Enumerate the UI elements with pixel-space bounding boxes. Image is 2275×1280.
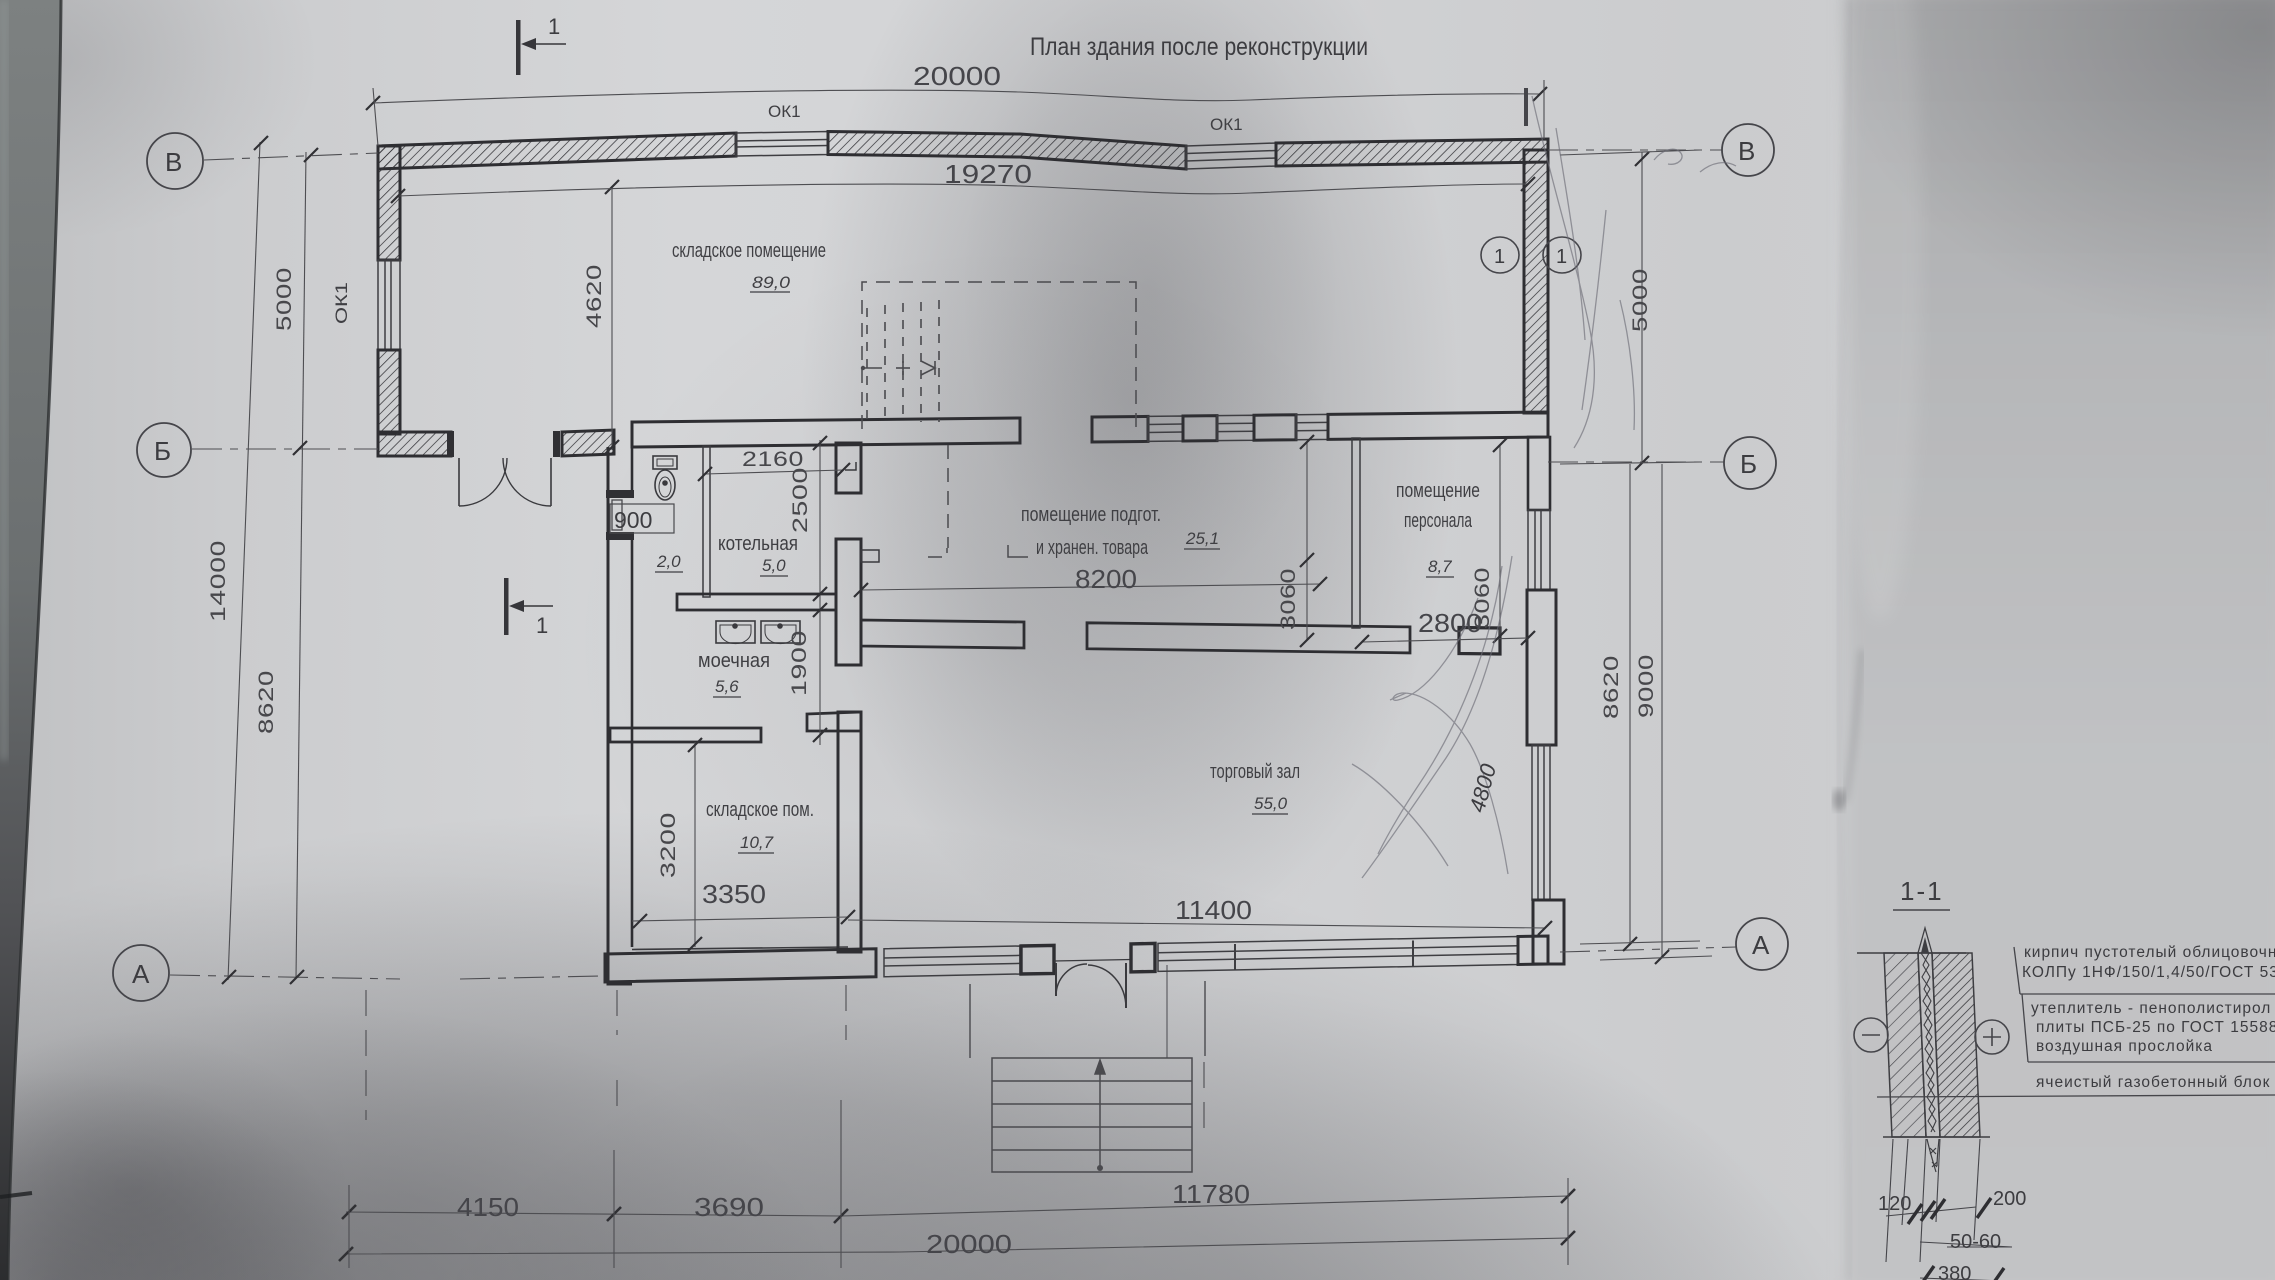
svg-text:помещение подгот.: помещение подгот.: [1021, 504, 1161, 526]
svg-text:55,0: 55,0: [1254, 794, 1288, 813]
svg-text:ОК1: ОК1: [1210, 115, 1243, 134]
svg-text:20000: 20000: [926, 1229, 1012, 1259]
svg-text:8200: 8200: [1075, 564, 1137, 594]
svg-text:и хранен. товара: и хранен. товара: [1036, 537, 1149, 559]
svg-text:19270: 19270: [944, 159, 1032, 189]
svg-text:8620: 8620: [255, 670, 278, 734]
svg-text:8620: 8620: [1600, 655, 1623, 719]
svg-text:900: 900: [614, 507, 652, 533]
svg-text:4150: 4150: [457, 1192, 519, 1222]
svg-text:1-1: 1-1: [1900, 876, 1944, 906]
svg-text:3060: 3060: [1277, 568, 1300, 630]
svg-text:А: А: [132, 959, 150, 989]
svg-text:КОЛПу 1НФ/150/1,4/50/ГОСТ 530: КОЛПу 1НФ/150/1,4/50/ГОСТ 530: [2022, 964, 2275, 981]
svg-text:4620: 4620: [583, 264, 606, 328]
svg-text:воздушная прослойка: воздушная прослойка: [2036, 1038, 2213, 1055]
svg-text:20000: 20000: [913, 61, 1001, 91]
svg-text:3690: 3690: [694, 1192, 764, 1222]
svg-text:1: 1: [548, 14, 560, 39]
svg-text:ОК1: ОК1: [332, 282, 351, 324]
svg-text:5000: 5000: [1629, 268, 1652, 332]
svg-text:торговый зал: торговый зал: [1210, 761, 1300, 783]
svg-text:5,6: 5,6: [715, 677, 739, 696]
svg-text:5000: 5000: [273, 267, 296, 331]
svg-text:А: А: [1752, 930, 1770, 960]
svg-text:2500: 2500: [789, 467, 812, 533]
svg-text:14000: 14000: [207, 540, 230, 622]
svg-text:утеплитель - пенополистирол: утеплитель - пенополистирол: [2031, 1000, 2271, 1017]
svg-text:персонала: персонала: [1404, 510, 1473, 532]
svg-text:2,0: 2,0: [656, 552, 681, 571]
svg-text:кирпич пустотелый облицовочн: кирпич пустотелый облицовочн: [2024, 944, 2275, 961]
svg-text:25,1: 25,1: [1185, 529, 1219, 548]
svg-text:Б: Б: [154, 436, 171, 466]
svg-text:ячеистый газобетонный блок: ячеистый газобетонный блок: [2036, 1074, 2270, 1091]
svg-text:В: В: [165, 147, 182, 177]
svg-text:3060: 3060: [1471, 567, 1494, 629]
svg-text:200: 200: [1993, 1188, 2026, 1210]
svg-text:380: 380: [1938, 1263, 1971, 1280]
svg-text:1: 1: [536, 613, 548, 638]
svg-text:11400: 11400: [1175, 895, 1252, 925]
svg-text:1: 1: [1556, 246, 1567, 268]
svg-text:9000: 9000: [1635, 654, 1658, 718]
svg-text:8,7: 8,7: [1428, 557, 1452, 576]
svg-text:План здания после реконструкц: План здания после реконструкции: [1030, 33, 1368, 61]
svg-text:89,0: 89,0: [752, 273, 791, 292]
svg-text:складское помещение: складское помещение: [672, 240, 826, 262]
svg-text:Б: Б: [1740, 449, 1757, 479]
svg-text:котельная: котельная: [718, 533, 798, 555]
svg-text:моечная: моечная: [698, 650, 770, 672]
svg-text:10,7: 10,7: [740, 833, 774, 852]
svg-text:50-60: 50-60: [1950, 1231, 2001, 1253]
svg-text:В: В: [1738, 136, 1755, 166]
svg-text:3200: 3200: [657, 812, 680, 878]
svg-text:плиты ПСБ-25 по ГОСТ 15588: плиты ПСБ-25 по ГОСТ 15588: [2036, 1019, 2275, 1036]
svg-text:3350: 3350: [702, 879, 766, 909]
svg-text:помещение: помещение: [1396, 480, 1480, 502]
svg-text:ОК1: ОК1: [768, 102, 801, 121]
svg-text:1900: 1900: [788, 630, 811, 696]
svg-text:11780: 11780: [1172, 1179, 1250, 1209]
svg-text:складское пом.: складское пом.: [706, 799, 814, 821]
svg-text:1: 1: [1494, 246, 1505, 268]
svg-text:5,0: 5,0: [762, 556, 786, 575]
svg-text:120: 120: [1878, 1193, 1911, 1215]
